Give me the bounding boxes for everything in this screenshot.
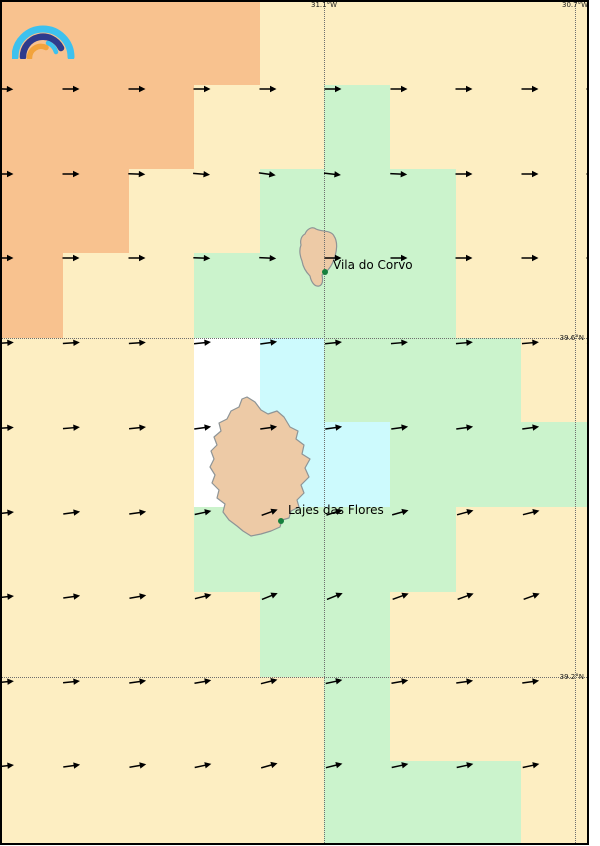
rainbow-logo-icon [12, 15, 78, 59]
coordinate-labels-layer: 31.1°W30.7°W39.6°N39.2°N [0, 0, 589, 845]
latitude-label: 39.6°N [560, 334, 584, 343]
longitude-label: 31.1°W [311, 1, 337, 10]
wind-forecast-map-screenshot: Vila do CorvoLajes das Flores 31.1°W30.7… [0, 0, 600, 846]
map-canvas: Vila do CorvoLajes das Flores 31.1°W30.7… [0, 0, 589, 845]
latitude-label: 39.2°N [560, 673, 584, 682]
logo-arc-inner-amber [29, 46, 46, 58]
longitude-label: 30.7°W [562, 1, 588, 10]
